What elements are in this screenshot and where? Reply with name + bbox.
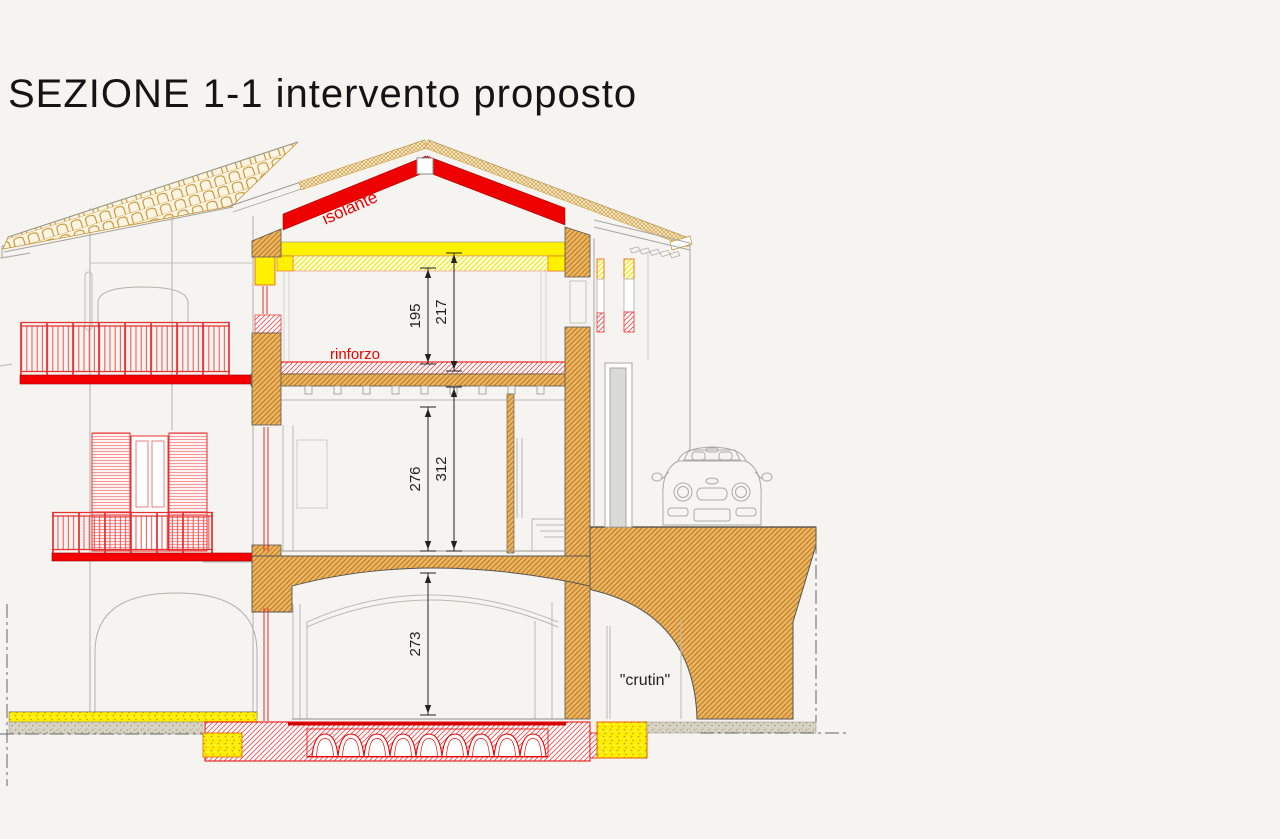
- joist-hole: [508, 386, 515, 394]
- lower-balcony-slab: [52, 553, 262, 561]
- joist-hole: [479, 386, 486, 394]
- dim-text-276: 276: [407, 466, 424, 491]
- insulation-block: [277, 256, 293, 271]
- dim-text-195: 195: [407, 303, 424, 328]
- eave-insulation-block: [255, 254, 275, 285]
- basement-reinforcement-lines: [264, 608, 268, 721]
- insulation-block: [548, 256, 565, 271]
- niche-window: [85, 272, 92, 330]
- door-leaf-outline: [297, 440, 327, 508]
- gravel-strip-left: [9, 722, 203, 734]
- dim-first-floor-total: 312: [433, 387, 462, 551]
- flue-section-body: [624, 279, 634, 312]
- rinforzo-label: rinforzo: [330, 346, 380, 363]
- right-room-window-frame: [517, 438, 522, 518]
- footing-insulation-right: [597, 722, 647, 758]
- dim-attic-clear: 195: [407, 268, 436, 364]
- left-wall-mid: [252, 333, 281, 425]
- joist-hole: [537, 386, 544, 394]
- flue-section-body: [597, 279, 604, 313]
- gravel-strip-right: [647, 722, 816, 733]
- floor-slab-masonry: [251, 374, 590, 386]
- joist-hole: [305, 386, 312, 394]
- footing-insulation-left: [203, 733, 242, 757]
- ground-insulation-strip: [9, 712, 257, 722]
- garage-mass: [590, 527, 816, 719]
- right-wall-window-frame: [570, 281, 586, 323]
- edge-tick: [0, 256, 12, 366]
- dim-cellar-clear: 273: [407, 573, 436, 715]
- attic-level: [255, 242, 565, 361]
- garage-masonry-wedge: [590, 527, 816, 719]
- joist-hole: [363, 386, 370, 394]
- car: [652, 447, 772, 525]
- flue-section-red: [624, 312, 634, 332]
- dimensions: 195 217 276: [407, 253, 462, 715]
- tiled-roof-plane: [3, 142, 298, 249]
- dim-text-312: 312: [433, 456, 450, 481]
- car-roof: [678, 447, 746, 461]
- ceiling-insulation-band: [281, 242, 565, 256]
- attic-floor: [251, 362, 590, 400]
- car-seat: [692, 452, 705, 460]
- right-slope-tiles: [425, 140, 691, 247]
- car-mirror: [762, 473, 772, 481]
- drawing-title: SEZIONE 1-1 intervento proposto: [8, 72, 637, 117]
- flue-section-red: [597, 313, 604, 332]
- crutin-label: "crutin": [620, 672, 670, 689]
- dim-text-273: 273: [407, 631, 424, 656]
- flue-section-yellow: [597, 259, 604, 279]
- section-drawing: 195 217 276: [0, 0, 1280, 839]
- igloo-vents: [312, 734, 546, 756]
- vault-intrados-arc: [307, 600, 558, 627]
- window-reinforcement-lines: [264, 427, 268, 551]
- basement-door-frame: [293, 602, 552, 719]
- attic-window-frame: [263, 286, 267, 314]
- joist-hole: [392, 386, 399, 394]
- stair-lines: [532, 519, 565, 551]
- right-wall-main: [565, 327, 590, 719]
- joist-hole: [421, 386, 428, 394]
- flue-section-yellow: [624, 259, 634, 279]
- right-wall-attic: [565, 227, 590, 277]
- left-annex-roof: [3, 142, 298, 249]
- vault-intrados-arc: [307, 595, 558, 622]
- left-wall-attic: [252, 229, 281, 257]
- car-mirror: [652, 473, 662, 481]
- dim-first-floor-clear: 276: [407, 407, 436, 551]
- ground-floor-arch: [95, 593, 257, 719]
- upper-arch-opening: [98, 287, 188, 328]
- lower-balcony-railing: [53, 516, 212, 550]
- attic-sill-reinforcement: [255, 315, 281, 333]
- joist-hole: [334, 386, 341, 394]
- vault-masonry: [252, 556, 590, 612]
- car-seat: [719, 452, 732, 460]
- dim-text-217: 217: [433, 299, 450, 324]
- main-roof: [230, 140, 692, 258]
- ridge-beam: [417, 158, 433, 174]
- ceiling-pale-hatch-band: [293, 256, 565, 271]
- window-frame-lines: [283, 425, 293, 551]
- interior-partition: [507, 394, 514, 553]
- upper-balcony-slab: [20, 375, 253, 384]
- architectural-section-page: SEZIONE 1-1 intervento proposto: [0, 0, 1280, 839]
- garage-door-leaf: [610, 368, 626, 527]
